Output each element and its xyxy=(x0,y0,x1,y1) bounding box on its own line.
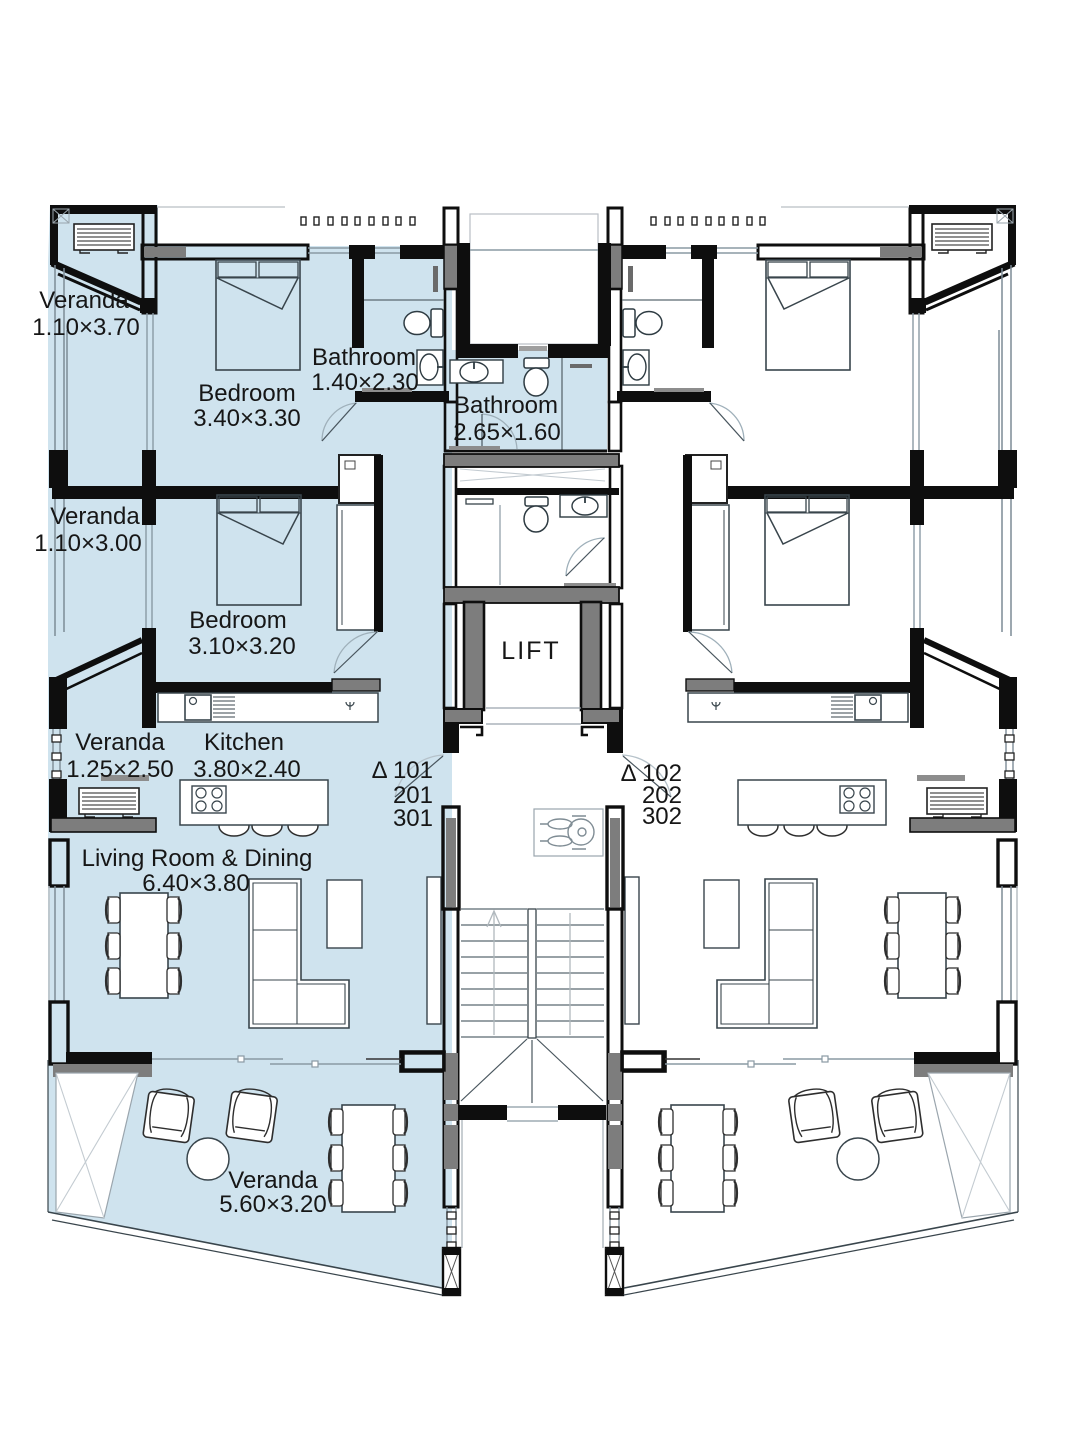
svg-text:Veranda: Veranda xyxy=(75,729,165,756)
svg-text:6.40×3.80: 6.40×3.80 xyxy=(142,870,249,897)
svg-text:Bathroom: Bathroom xyxy=(454,392,558,419)
svg-text:Veranda: Veranda xyxy=(228,1167,318,1194)
svg-text:Bathroom: Bathroom xyxy=(312,344,416,371)
svg-text:1.40×2.30: 1.40×2.30 xyxy=(311,369,418,396)
svg-text:5.60×3.20: 5.60×3.20 xyxy=(219,1191,326,1218)
svg-text:1.10×3.70: 1.10×3.70 xyxy=(32,314,139,341)
svg-text:Veranda: Veranda xyxy=(39,287,129,314)
svg-text:LIFT: LIFT xyxy=(501,637,560,665)
svg-text:Bedroom: Bedroom xyxy=(198,380,295,407)
svg-text:Bedroom: Bedroom xyxy=(189,607,286,634)
svg-text:3.10×3.20: 3.10×3.20 xyxy=(188,633,295,660)
svg-text:Living Room & Dining: Living Room & Dining xyxy=(82,845,313,872)
svg-text:302: 302 xyxy=(642,803,682,830)
svg-text:Δ 101: Δ 101 xyxy=(372,757,433,784)
svg-text:3.40×3.30: 3.40×3.30 xyxy=(193,405,300,432)
svg-text:2.65×1.60: 2.65×1.60 xyxy=(453,419,560,446)
svg-text:1.10×3.00: 1.10×3.00 xyxy=(34,530,141,557)
svg-text:Veranda: Veranda xyxy=(50,503,140,530)
svg-text:Kitchen: Kitchen xyxy=(204,729,284,756)
svg-text:1.25×2.50: 1.25×2.50 xyxy=(66,756,173,783)
svg-text:3.80×2.40: 3.80×2.40 xyxy=(193,756,300,783)
svg-text:301: 301 xyxy=(393,805,433,832)
